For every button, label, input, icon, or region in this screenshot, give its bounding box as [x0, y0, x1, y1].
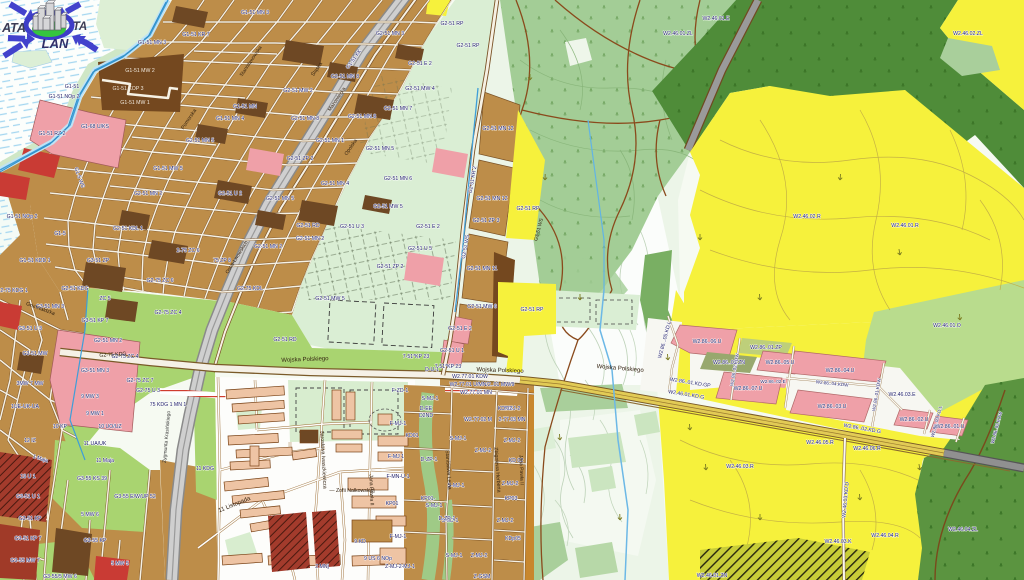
svg-text:— Zofii Nałkowskiej: — Zofii Nałkowskiej [329, 488, 374, 494]
svg-text:5 MW 6: 5 MW 6 [81, 512, 99, 518]
svg-text:G2-51 MN 12: G2-51 MN 12 [482, 126, 513, 132]
svg-text:G2-51 MN 2: G2-51 MN 2 [134, 191, 162, 197]
svg-text:G2-75 ZC 6: G2-75 ZC 6 [146, 278, 173, 284]
svg-text:G2-51 MN 6: G2-51 MN 6 [384, 176, 412, 182]
svg-text:G2-51 RD: G2-51 RD [273, 337, 297, 343]
svg-text:W2.46.05.R: W2.46.05.R [806, 440, 834, 446]
svg-text:G2-51 U 5: G2-51 U 5 [408, 246, 432, 252]
svg-text:W2.46.03.K: W2.46.03.K [824, 539, 852, 545]
svg-text:G1-51 NOp 2: G1-51 NOp 2 [7, 214, 38, 220]
svg-text:D-ZP-1: D-ZP-1 [439, 516, 456, 522]
svg-text:Z-MJ-2: Z-MJ-2 [502, 481, 519, 487]
svg-text:F-MJ-1: F-MJ-1 [390, 421, 407, 427]
svg-text:W2.86..02.E: W2.86..02.E [760, 379, 785, 384]
svg-text:W2.86..02.U: W2.86..02.U [900, 417, 929, 423]
svg-text:5 MW 5: 5 MW 5 [111, 561, 129, 567]
svg-text:G2-51 MN 2: G2-51 MN 2 [254, 244, 282, 250]
svg-text:G3-55 KS 39: G3-55 KS 39 [77, 476, 107, 482]
svg-text:W2.86..04.U: W2.86..04.U [826, 368, 855, 374]
svg-text:G2-51 ZP 2: G2-51 ZP 2 [377, 264, 404, 270]
svg-text:Z-MJ-2: Z-MJ-2 [504, 438, 521, 444]
svg-text:75 ZP 8: 75 ZP 8 [213, 258, 231, 264]
svg-text:W2.46.03.E: W2.46.03.E [888, 392, 916, 398]
svg-text:G2-75 KDL: G2-75 KDL [237, 286, 263, 292]
svg-text:G2-51 MW 2: G2-51 MW 2 [283, 88, 313, 94]
svg-text:G2-51 RP: G2-51 RP [440, 21, 464, 27]
svg-text:W2.46.04.ZL: W2.46.04.ZL [948, 527, 978, 533]
svg-text:W2.46.06.R: W2.46.06.R [853, 446, 881, 452]
svg-text:G2-75 U 3: G2-75 U 3 [136, 388, 160, 394]
svg-text:G3-51 U 1: G3-51 U 1 [16, 494, 40, 500]
svg-text:Z-GSM: Z-GSM [474, 574, 491, 580]
svg-text:G1-51 MN 4: G1-51 MN 4 [216, 116, 244, 122]
svg-text:D-U-1: D-U-1 [425, 367, 439, 373]
svg-text:KD.02: KD.02 [498, 406, 513, 412]
svg-text:D-EE: D-EE [420, 406, 433, 412]
svg-text:G1-51 MN 3: G1-51 MN 3 [138, 40, 166, 46]
svg-text:W2.46.02.R: W2.46.02.R [793, 214, 821, 220]
svg-text:G2-51 MN 8: G2-51 MN 8 [291, 116, 319, 122]
svg-text:G1-51 KOP 3: G1-51 KOP 3 [112, 86, 143, 92]
svg-text:KDp05: KDp05 [505, 536, 521, 542]
svg-text:G2-51 RP: G2-51 RP [516, 206, 540, 212]
svg-text:G2-51 MN 4: G2-51 MN 4 [321, 181, 349, 187]
svg-text:KP01: KP01 [386, 501, 399, 507]
svg-text:G3-51 U 3: G3-51 U 3 [18, 326, 42, 332]
svg-text:2-77.03 MN: 2-77.03 MN [498, 417, 525, 423]
svg-text:W2.77.02 M: W2.77.02 M [464, 417, 492, 423]
svg-text:12 IZ: 12 IZ [24, 438, 36, 444]
svg-text:W2.86..01.U: W2.86..01.U [936, 424, 965, 430]
svg-text:2-75 ZC 6: 2-75 ZC 6 [176, 248, 199, 254]
svg-text:W2.77.01 MN: W2.77.01 MN [460, 390, 492, 396]
svg-text:9 MW 3: 9 MW 3 [81, 394, 99, 400]
svg-text:G2-75 KDG 1: G2-75 KDG 1 [0, 288, 28, 294]
svg-text:W2.46.01.E: W2.46.01.E [702, 16, 730, 22]
svg-text:G3-51 MW: G3-51 MW [22, 351, 47, 357]
svg-text:9 US 6 NOp: 9 US 6 NOp [364, 556, 392, 562]
svg-text:LAN: LAN [42, 36, 69, 51]
svg-text:G2-51 E 2: G2-51 E 2 [408, 61, 432, 67]
svg-text:W2.86..01.ZP: W2.86..01.ZP [750, 345, 782, 351]
svg-text:ATA: ATA [1, 21, 26, 35]
svg-text:W2.46.02.ZL: W2.46.02.ZL [953, 31, 983, 37]
svg-text:G1-5: G1-5 [54, 231, 66, 237]
svg-text:G1-51: G1-51 [65, 84, 80, 90]
svg-text:G2-51 KDL 1: G2-51 KDL 1 [113, 226, 143, 232]
svg-text:KP03: KP03 [505, 496, 518, 502]
svg-text:G2-51 KDG: G2-51 KDG [61, 286, 88, 292]
svg-text:G2-51 MN 11: G2-51 MN 11 [467, 266, 498, 272]
svg-text:G2-51 RD: G2-51 RD [296, 223, 320, 229]
svg-text:D-ZP-1: D-ZP-1 [421, 457, 438, 463]
svg-text:G3-51 KP 7: G3-51 KP 7 [14, 536, 41, 542]
svg-text:W2.46.01.R: W2.46.01.R [891, 223, 919, 229]
svg-text:G1-51 RZ 2: G1-51 RZ 2 [38, 131, 65, 137]
svg-text:G2-51 MN 2: G2-51 MN 2 [296, 236, 324, 242]
svg-text:11 UA/UK: 11 UA/UK [84, 441, 107, 447]
svg-text:D2ND: D2ND [419, 413, 433, 419]
svg-text:W2.86..02.ZN: W2.86..02.ZN [713, 360, 745, 366]
svg-text:G2-51 ZP 2: G2-51 ZP 2 [287, 156, 314, 162]
svg-text:W2.46.01.O: W2.46.01.O [933, 323, 961, 329]
svg-text:G1-51 MN 3: G1-51 MN 3 [241, 10, 269, 16]
svg-text:S-MJ-1: S-MJ-1 [446, 553, 463, 559]
svg-text:75 KDG 1 MN 1: 75 KDG 1 MN 1 [150, 402, 187, 408]
svg-text:G3-51 MN 3: G3-51 MN 3 [81, 368, 109, 374]
svg-text:W2.46.04.R: W2.46.04.R [871, 533, 899, 539]
svg-text:G1-68 U/KS: G1-68 U/KS [81, 124, 110, 130]
svg-text:S-MJ-1: S-MJ-1 [450, 436, 467, 442]
svg-text:G2-51 RP: G2-51 RP [456, 43, 480, 49]
svg-text:G2-51 MW 4: G2-51 MW 4 [405, 86, 435, 92]
svg-text:G3-55 E/W/UP 52: G3-55 E/W/UP 52 [114, 494, 156, 500]
svg-text:G2-51 MN 5: G2-51 MN 5 [266, 196, 294, 202]
svg-text:G2-51 MN 7: G2-51 MN 7 [384, 106, 412, 112]
svg-text:W2.86..05.U: W2.86..05.U [766, 360, 795, 366]
svg-text:G3-51 KP 7: G3-51 KP 7 [81, 318, 108, 324]
svg-text:G3-51 ZP: G3-51 ZP [87, 258, 110, 264]
svg-text:G2-51 MN 5: G2-51 MN 5 [366, 146, 394, 152]
svg-text:G3-55 MW 7: G3-55 MW 7 [10, 558, 40, 564]
svg-text:F-MN-U-1: F-MN-U-1 [386, 474, 409, 480]
svg-text:W2.86..07.U: W2.86..07.U [734, 386, 763, 392]
svg-text:G2-51 MN 8: G2-51 MN 8 [331, 74, 359, 80]
svg-text:Z-MJ-2-MJ-1: Z-MJ-2-MJ-1 [385, 564, 415, 570]
svg-text:G2-51 MN 2: G2-51 MN 2 [94, 338, 122, 344]
svg-text:Z-MJ-2: Z-MJ-2 [471, 553, 488, 559]
svg-text:G2-51 MN 8: G2-51 MN 8 [348, 114, 376, 120]
svg-text:G1-51 NOp 2: G1-51 NOp 2 [49, 94, 80, 100]
svg-text:W2.77.01 U/MN/2..01 MW/9: W2.77.01 U/MN/2..01 MW/9 [450, 382, 515, 388]
svg-text:W2.77.01 KDW: W2.77.01 KDW [452, 374, 488, 380]
svg-text:Z-MJ-2: Z-MJ-2 [475, 448, 492, 454]
svg-text:G1-51 KDD 1: G1-51 KDD 1 [19, 258, 50, 264]
svg-text:G2-51 MN 12: G2-51 MN 12 [476, 196, 507, 202]
svg-text:W2.46.01.ZL: W2.46.01.ZL [663, 31, 693, 37]
svg-text:G2-51 MW 5: G2-51 MW 5 [373, 204, 403, 210]
svg-text:G2-51 MN 5: G2-51 MN 5 [186, 138, 214, 144]
svg-text:10 KP: 10 KP [53, 424, 68, 430]
svg-text:G1-51 MW 5: G1-51 MW 5 [153, 166, 183, 172]
svg-text:G1-51 MN: G1-51 MN [233, 104, 257, 110]
svg-text:3MW 7 MW: 3MW 7 MW [16, 381, 43, 387]
svg-text:11 Maja: 11 Maja [96, 458, 114, 464]
svg-text:1UE-UK-UA: 1UE-UK-UA [11, 404, 39, 410]
svg-text:G2-51 U 2: G2-51 U 2 [218, 191, 242, 197]
svg-text:G3-55/5 MW 6: G3-55/5 MW 6 [43, 574, 77, 580]
svg-text:KP01-: KP01- [421, 496, 436, 502]
svg-text:W2.86..03.U: W2.86..03.U [818, 404, 847, 410]
svg-text:G2-51 MN 3: G2-51 MN 3 [376, 31, 404, 37]
svg-text:F-MJ 1: F-MJ 1 [388, 454, 404, 460]
svg-text:10 UO/UZ: 10 UO/UZ [98, 424, 121, 430]
svg-text:G3-55 KP: G3-55 KP [84, 538, 107, 544]
svg-text:F-MJ-1: F-MJ-1 [390, 534, 407, 540]
svg-text:S-MJ-1: S-MJ-1 [426, 503, 443, 509]
svg-text:G1-51 KR 7: G1-51 KR 7 [182, 32, 210, 38]
svg-text:Jana Pawła II: Jana Pawła II [517, 455, 524, 485]
svg-text:7-51*KP 23: 7-51*KP 23 [403, 354, 430, 360]
svg-text:G2-51 ZP 3: G2-51 ZP 3 [473, 218, 500, 224]
svg-text:G2-51 MW 6: G2-51 MW 6 [467, 304, 497, 310]
svg-text:9 MW 1: 9 MW 1 [86, 411, 104, 417]
svg-text:G1-51 MW 2: G1-51 MW 2 [125, 68, 155, 74]
svg-text:11 KDG: 11 KDG [196, 466, 214, 472]
svg-text:G2-75 ZC 4: G2-75 ZC 4 [154, 310, 181, 316]
svg-text:S-MJ-1: S-MJ-1 [422, 396, 439, 402]
svg-text:G2-51 E 2: G2-51 E 2 [416, 224, 440, 230]
svg-text:G2-75 ZC 7: G2-75 ZC 7 [126, 378, 153, 384]
svg-text:Z-MJ-2: Z-MJ-2 [497, 518, 514, 524]
svg-text:G2-51 MW 5: G2-51 MW 5 [315, 296, 345, 302]
svg-text:W2.46.03.R: W2.46.03.R [726, 464, 754, 470]
svg-text:G1-51 MW 1: G1-51 MW 1 [120, 100, 150, 106]
svg-text:G2-51 MN 1: G2-51 MN 1 [316, 138, 344, 144]
svg-text:G2-51 RP: G2-51 RP [520, 307, 544, 313]
svg-text:G2-51 U 1: G2-51 U 1 [440, 348, 464, 354]
svg-text:G3-51 KP: G3-51 KP [19, 516, 42, 522]
svg-text:TA: TA [73, 21, 87, 33]
svg-text:F-ZD-1: F-ZD-1 [392, 388, 409, 394]
svg-text:W2.86..06.U: W2.86..06.U [693, 339, 722, 345]
svg-text:W2.46.01.ZN: W2.46.01.ZN [697, 573, 728, 579]
svg-text:G2-51 U 3: G2-51 U 3 [340, 224, 364, 230]
svg-text:2 MNj: 2 MNj [315, 564, 329, 570]
svg-text:13 U 1: 13 U 1 [20, 474, 35, 480]
svg-text:9 KD: 9 KD [354, 539, 366, 545]
svg-text:ZC 5: ZC 5 [99, 296, 110, 302]
svg-text:G2-51 E 2: G2-51 E 2 [448, 326, 472, 332]
svg-text:KD01: KD01 [406, 433, 419, 439]
